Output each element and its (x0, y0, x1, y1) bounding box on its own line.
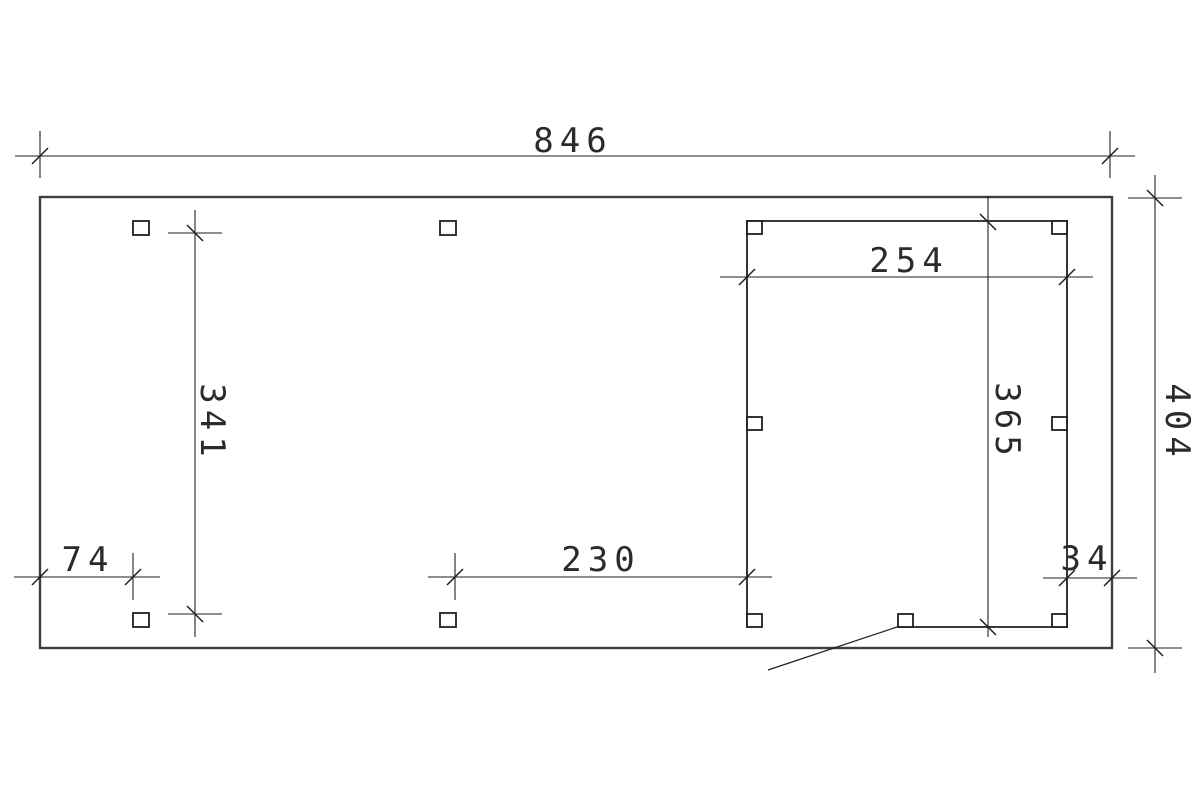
post (1052, 221, 1067, 234)
dimension-label: 34 (1061, 539, 1114, 579)
dimension-left-post-spacing: 341 (168, 210, 232, 637)
post (898, 614, 913, 627)
dimension-label: 404 (1157, 383, 1197, 462)
post (747, 221, 762, 234)
dimension-left-offset: 74 (14, 540, 160, 600)
dimension-label: 846 (533, 121, 612, 161)
dimension-middle-post-spacing: 230 (428, 540, 772, 600)
dimension-right-offset: 34 (1043, 539, 1137, 586)
technical-drawing-page: 846 404 341 365 254 74 (0, 0, 1200, 800)
post (133, 613, 149, 627)
post (747, 417, 762, 430)
dimension-label: 341 (192, 383, 232, 462)
dimension-enclosure-width: 254 (720, 241, 1093, 285)
floor-plan-drawing: 846 404 341 365 254 74 (0, 0, 1200, 800)
dimension-label: 254 (869, 241, 948, 281)
post (747, 614, 762, 627)
dimension-label: 230 (561, 540, 640, 580)
dimension-label: 74 (62, 540, 115, 580)
dimension-enclosure-depth: 365 (980, 196, 1027, 637)
post (1052, 417, 1067, 430)
dimension-overall-width: 846 (15, 121, 1135, 178)
post (133, 221, 149, 235)
post (1052, 614, 1067, 627)
dimension-overall-depth: 404 (1128, 175, 1197, 673)
post (440, 613, 456, 627)
dimension-label: 365 (987, 382, 1027, 461)
post (440, 221, 456, 235)
